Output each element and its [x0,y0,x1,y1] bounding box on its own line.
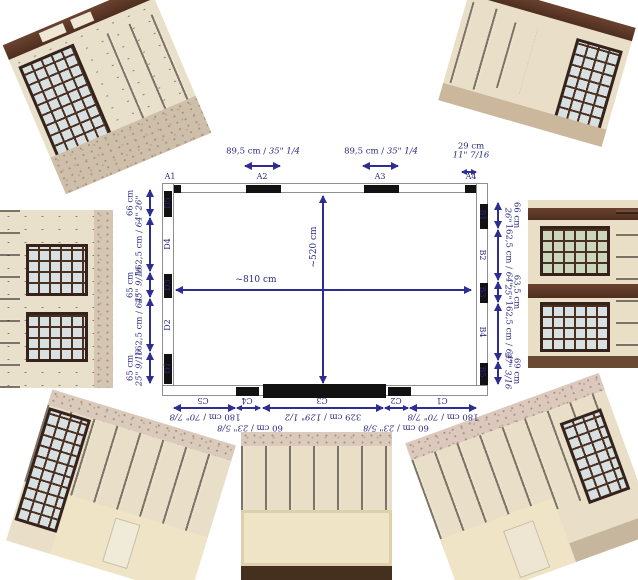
measure-sep: / [134,227,144,235]
label-D3: D3 [164,279,172,291]
label-B5: B5 [478,367,486,378]
window [540,226,610,276]
overall-width-label: ~810 cm [235,276,276,286]
wall-segment-A3 [364,185,399,193]
label-D4: D4 [164,238,172,250]
measure-B5: 69 cm27" 3/16 [502,353,521,390]
measure-in: 129" 1/2 [285,412,322,422]
window [540,302,610,352]
window [26,312,88,362]
measure-cm: 89,5 cm [226,146,260,156]
dimension-arrow-B5 [497,362,499,384]
label-D1: D1 [164,362,172,374]
measure-C3: 329 cm / 129" 1/2 [285,411,362,420]
measure-in: 23" 5/8 [217,423,248,433]
measure-sep: / [439,412,447,422]
measure-A2: 89,5 cm / 35" 1/4 [226,147,300,156]
photo-top-left [3,0,212,194]
measure-in: 70" 7/8 [169,412,200,422]
measure-D1: 65 cm25" 9/16 [127,350,146,387]
measure-in: 11" 7/16 [453,152,490,161]
ceiling [241,432,392,446]
overall-height-arrow [322,196,324,383]
measure-A3: 89,5 cm / 35" 1/4 [344,147,418,156]
label-B2: B2 [478,250,486,261]
dimension-arrow-D5 [149,190,151,216]
measure-sep: / [394,423,402,433]
measure-cm: 69 cm [511,353,520,390]
label-C3: C3 [316,396,327,404]
photo-mid-right [528,200,638,368]
photo-bottom-center [241,432,392,580]
measure-sep: / [201,412,209,422]
label-B4: B4 [478,327,486,338]
measure-sep: / [261,146,269,156]
dimension-arrow-D1 [149,353,151,383]
dimension-arrow-B1 [497,203,499,228]
paneling [616,200,638,368]
label-A3: A3 [375,173,386,181]
measure-C5: 180 cm / 70" 7/8 [169,411,240,420]
measure-in: 70" 7/8 [407,412,438,422]
label-C2: C2 [390,396,401,404]
measure-A4: 29 cm11" 7/16 [453,143,490,162]
floor [569,514,638,562]
label-D2: D2 [164,319,172,331]
measure-sep: / [321,412,329,422]
measure-sep: / [504,263,514,271]
dimension-arrow-B3 [497,282,499,302]
window [26,244,88,296]
room-panelling-plan-sheet: A1 A2 A3 A4 89,5 cm / 35" 1/4 89,5 cm / … [0,0,638,580]
dimension-arrow-D2 [149,299,151,351]
measure-sep: / [134,308,144,316]
wall-segment-C4 [236,387,259,396]
measure-cm: 60 cm [257,423,283,433]
photo-top-right [438,0,636,147]
dimension-arrow-D4 [149,218,151,271]
measure-C4: 60 cm / 23" 5/8 [217,422,283,431]
measure-in: 64" [134,213,144,228]
dimension-arrow-C4 [237,407,260,409]
label-C1: C1 [436,396,447,404]
measure-in: 35" 1/4 [387,146,418,156]
dimension-arrow-C5 [174,407,235,409]
dimension-arrow-B4 [497,304,499,360]
measure-C1: 180 cm / 70" 7/8 [407,411,478,420]
measure-cm: 162,5 cm [504,224,514,264]
label-C4: C4 [241,396,252,404]
bottom-wall [162,385,488,396]
measure-D2: 162,5 cm / 64" [135,294,144,357]
crumbling-plaster [94,210,113,388]
wall-segment-A2 [246,185,281,193]
dimension-arrow-D3 [149,273,151,297]
measure-cm: 162,5 cm [504,301,514,341]
label-D5: D5 [164,197,172,209]
measure-in: 64" [134,294,144,309]
measure-sep: / [504,340,514,348]
measure-sep: / [248,423,256,433]
base-shadow [241,566,392,580]
recessed-wall [241,510,392,566]
measure-sep: / [379,146,387,156]
measure-C2: 60 cm / 23" 5/8 [363,422,429,431]
top-wall [162,183,488,193]
measure-in: 35" 1/4 [269,146,300,156]
measure-cm: 180 cm [447,412,479,422]
wall-segment-C2 [388,387,411,396]
measure-cm: 60 cm [403,423,429,433]
dimension-arrow-A2 [245,165,280,167]
measure-cm: 329 cm [330,412,362,422]
measure-in: 23" 5/8 [363,423,394,433]
measure-cm: 180 cm [209,412,241,422]
label-B1: B1 [478,210,486,221]
floor [528,356,638,368]
dimension-arrow-A3 [363,165,398,167]
overall-height-label: ~520 cm [310,226,320,267]
dimension-arrow-C3 [263,407,383,409]
label-A2: A2 [257,173,268,181]
measure-cm: 89,5 cm [344,146,378,156]
panel-row [241,446,392,510]
measure-in: 25" 9/16 [136,350,145,387]
dimension-arrow-C1 [410,407,476,409]
dimension-arrow-B2 [497,230,499,280]
label-C5: C5 [197,396,208,404]
dimension-arrow-C2 [385,407,408,409]
paneling [0,210,20,388]
label-A1: A1 [165,173,176,181]
label-B3: B3 [478,287,486,298]
dimension-arrow-A4 [462,171,476,173]
measure-in: 27" 3/16 [502,353,511,390]
photo-mid-left [0,210,113,388]
